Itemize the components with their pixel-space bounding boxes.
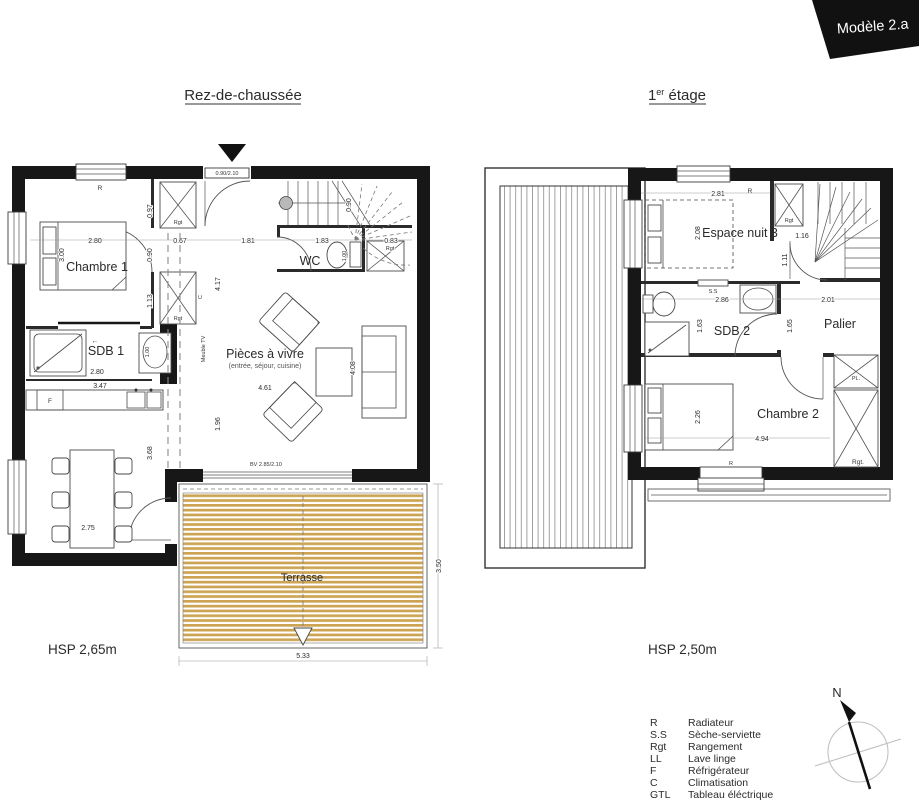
first-rgt-top-label: Rgt — [785, 218, 794, 224]
dim-181: 1.81 — [241, 238, 255, 245]
dim-090: 0.90 — [147, 248, 154, 262]
chambre1-label: Chambre 1 — [66, 260, 128, 274]
pl-label: PL. — [852, 376, 861, 382]
legend-label-6: Tableau éléctrique — [688, 789, 773, 800]
kitchen: F 3.47 — [26, 383, 163, 410]
dim-196: 1.96 — [215, 417, 222, 431]
ground-floor-plan: R 0.90/2.10 — [8, 144, 443, 666]
living-room: 4.08 Pièces à vivre (entrée, séjour, cui… — [226, 292, 406, 443]
north-arrow — [849, 722, 870, 789]
dim-kitchen: 3.47 — [93, 383, 107, 390]
legend-abbr-4: F — [650, 765, 656, 777]
north-arrow-head — [840, 700, 856, 722]
terrace-label: Terrasse — [281, 572, 323, 584]
legend-abbr-3: LL — [650, 753, 662, 765]
dim-bed-h: 3.00 — [59, 248, 66, 262]
entry-door-size: 0.90/2.10 — [216, 171, 239, 177]
dim-living-h: 4.08 — [350, 361, 357, 375]
pl-closet: PL. — [834, 355, 878, 388]
chambre2-label: Chambre 2 — [757, 407, 819, 421]
legend-label-1: Sèche-serviette — [688, 729, 761, 741]
chambre1: 2.80 3.00 Chambre 1 — [40, 222, 128, 290]
rgt-top-label: Rgt — [174, 220, 183, 226]
living-label: Pièces à vivre — [226, 347, 304, 361]
first-closet-top: Rgt — [775, 184, 803, 226]
meuble-tv-label: Meuble TV — [201, 335, 207, 362]
dim-terrace-w: 5.33 — [296, 653, 310, 660]
slide-door-arrow: ← — [92, 338, 99, 345]
legend-abbr-5: C — [650, 777, 658, 789]
ground-closet-mid: Rgt — [160, 272, 196, 324]
espace-nuit-label: Espace nuit 3 — [702, 226, 778, 240]
sdb1: SDB 1 1.00 2.80 ← — [30, 330, 171, 376]
dim-097: 0.97 — [147, 204, 154, 218]
dim-first-top-w: 2.81 — [711, 191, 725, 198]
dim-wc: 1.00 — [342, 251, 348, 262]
living-sublabel: (entrée, séjour, cuisine) — [229, 363, 302, 370]
entry-arrow-marker — [218, 144, 246, 162]
entry-door: 0.90/2.10 — [205, 168, 250, 226]
legend-abbr-1: S.S — [650, 729, 667, 741]
wc-label: WC — [300, 254, 321, 268]
legend-label-0: Radiateur — [688, 717, 734, 729]
legend-label-4: Réfrigérateur — [688, 765, 750, 777]
legend: R Radiateur S.S Sèche-serviette Rgt Rang… — [650, 717, 773, 800]
dim-dining-h: 3.68 — [147, 446, 154, 460]
first-floor-plan: R R — [485, 166, 893, 657]
dim-sdb-w: 2.80 — [90, 369, 104, 376]
first-radiator-bottom: R — [729, 461, 733, 467]
dim-sdb-sink: 1.00 — [145, 347, 151, 358]
dim-dining-w: 2.75 — [81, 525, 95, 532]
roof-area — [485, 168, 645, 568]
floor-plan-svg: Modèle 2.a Rez-de-chaussée 1er étage — [0, 0, 919, 800]
compass: N — [815, 685, 901, 789]
dim-living-w: 4.61 — [258, 385, 272, 392]
first-closet-bottom: Rgt. — [834, 390, 878, 467]
palier-label: Palier — [824, 317, 856, 331]
dim-sdb2-w: 2.86 — [715, 297, 729, 304]
rgt-stairs-label: Rgt — [386, 246, 395, 252]
first-title-rest: étage — [664, 87, 706, 104]
dim-palier-w: 2.01 — [821, 297, 835, 304]
first-rgt-bottom-label: Rgt. — [852, 459, 864, 466]
north-label: N — [832, 685, 841, 700]
dim-163: 1.63 — [697, 319, 704, 333]
terrace-door-arc — [129, 498, 171, 540]
chambre2-door-arc — [781, 357, 823, 399]
legend-abbr-6: GTL — [650, 789, 671, 800]
dining-area: 2.75 3.68 — [52, 446, 154, 548]
ground-closet-top: Rgt — [160, 182, 196, 228]
terrace: Terrasse 5.33 3.50 — [179, 484, 443, 666]
legend-label-2: Rangement — [688, 741, 742, 753]
legend-abbr-0: R — [650, 717, 658, 729]
first-title-num: 1 — [648, 87, 656, 104]
rgt-mid-label: Rgt — [174, 316, 183, 322]
sdb2: S.S 2.86 2.01 1.63 1.65 SDB 2 Palier — [641, 280, 880, 356]
legend-label-3: Lave linge — [688, 753, 736, 765]
dim-stairs-width: 0.90 — [346, 198, 353, 212]
wc-room: 1.00 WC — [300, 242, 361, 268]
ground-radiator-label: R — [98, 185, 103, 192]
stairs-closet: Rgt — [367, 241, 404, 271]
clim-label: C — [198, 295, 204, 299]
dim-183: 1.83 — [315, 238, 329, 245]
dim-bed-w: 2.80 — [88, 238, 102, 245]
dim-terrace-h: 3.50 — [436, 559, 443, 573]
dim-stairs-116: 1.16 — [795, 233, 809, 240]
first-radiator-top: R — [748, 188, 753, 195]
first-floor-title: 1er étage — [648, 87, 706, 104]
dim-083: 0.83 — [384, 238, 398, 245]
sdb2-label: SDB 2 — [714, 324, 750, 338]
floor-plan-page: Modèle 2.a Rez-de-chaussée 1er étage — [0, 0, 919, 800]
bay-window-label: BV 2.85/2.10 — [250, 462, 282, 468]
dim-113: 1.13 — [147, 294, 154, 308]
first-stairs — [815, 182, 880, 280]
first-rail — [648, 489, 890, 501]
fridge-label: F — [48, 398, 52, 405]
first-hsp: HSP 2,50m — [648, 642, 717, 657]
ss-label: S.S — [709, 289, 718, 295]
model-banner: Modèle 2.a — [812, 0, 919, 59]
first-title-sup: er — [656, 87, 664, 97]
legend-label-5: Climatisation — [688, 777, 748, 789]
ground-hsp: HSP 2,65m — [48, 642, 117, 657]
legend-abbr-2: Rgt — [650, 741, 666, 753]
sdb1-label: SDB 1 — [88, 344, 124, 358]
dim-first-bed-h: 2.08 — [695, 226, 702, 240]
dim-417: 4.17 — [215, 277, 222, 291]
dim-door-111: 1.11 — [782, 253, 789, 266]
dim-room-w: 4.94 — [755, 436, 769, 443]
dim-165: 1.65 — [787, 319, 794, 333]
ground-floor-title: Rez-de-chaussée — [184, 87, 302, 104]
dim-bed2-h: 2.26 — [695, 410, 702, 424]
